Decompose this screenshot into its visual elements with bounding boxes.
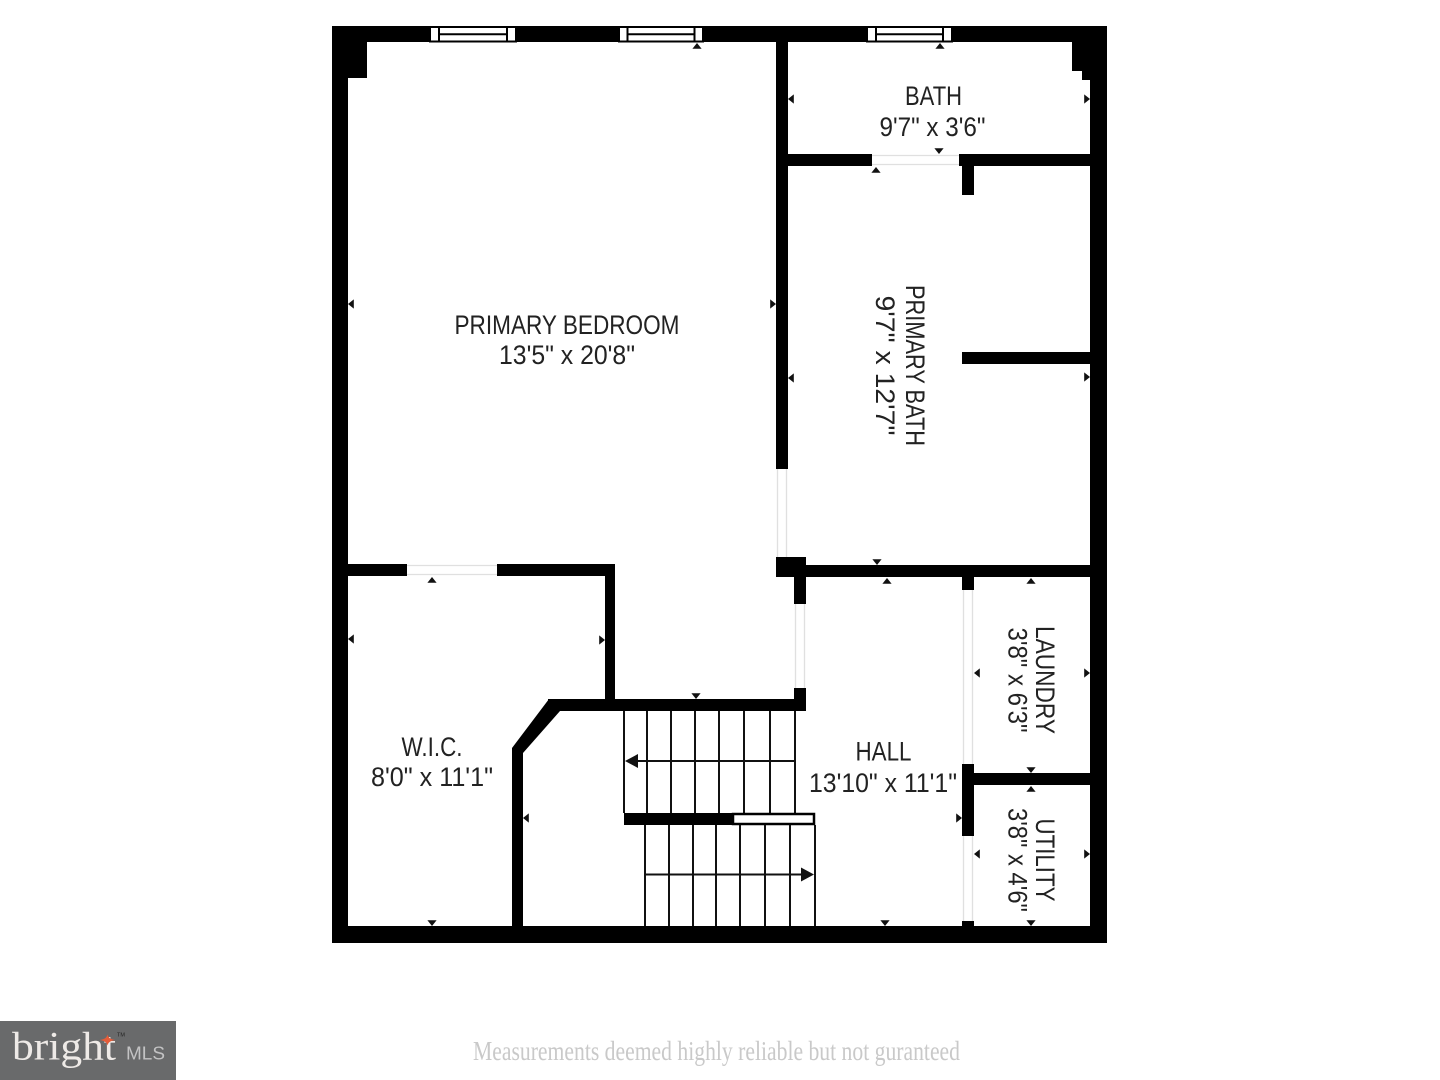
svg-text:3'8" x 6'3": 3'8" x 6'3"	[1003, 628, 1033, 733]
svg-text:LAUNDRY: LAUNDRY	[1030, 626, 1060, 734]
svg-text:13'10" x 11'1": 13'10" x 11'1"	[809, 768, 957, 798]
svg-text:13'5" x 20'8": 13'5" x 20'8"	[499, 340, 635, 370]
svg-text:PRIMARY BATH: PRIMARY BATH	[900, 285, 930, 446]
svg-text:BATH: BATH	[905, 81, 962, 111]
svg-text:TM: TM	[117, 1033, 125, 1039]
svg-text:UTILITY: UTILITY	[1030, 819, 1060, 902]
svg-text:HALL: HALL	[856, 737, 912, 767]
svg-text:bright: bright	[12, 1024, 116, 1069]
svg-text:3'8" x 4'6": 3'8" x 4'6"	[1003, 808, 1033, 912]
svg-text:PRIMARY BEDROOM: PRIMARY BEDROOM	[455, 310, 680, 340]
svg-text:Measurements deemed highly rel: Measurements deemed highly reliable but …	[473, 1036, 960, 1066]
svg-text:9'7" x 3'6": 9'7" x 3'6"	[880, 112, 986, 142]
svg-text:8'0" x 11'1": 8'0" x 11'1"	[371, 762, 493, 792]
svg-text:9'7" x 12'7": 9'7" x 12'7"	[870, 296, 900, 436]
svg-text:W.I.C.: W.I.C.	[402, 732, 463, 762]
svg-text:MLS: MLS	[126, 1043, 165, 1064]
